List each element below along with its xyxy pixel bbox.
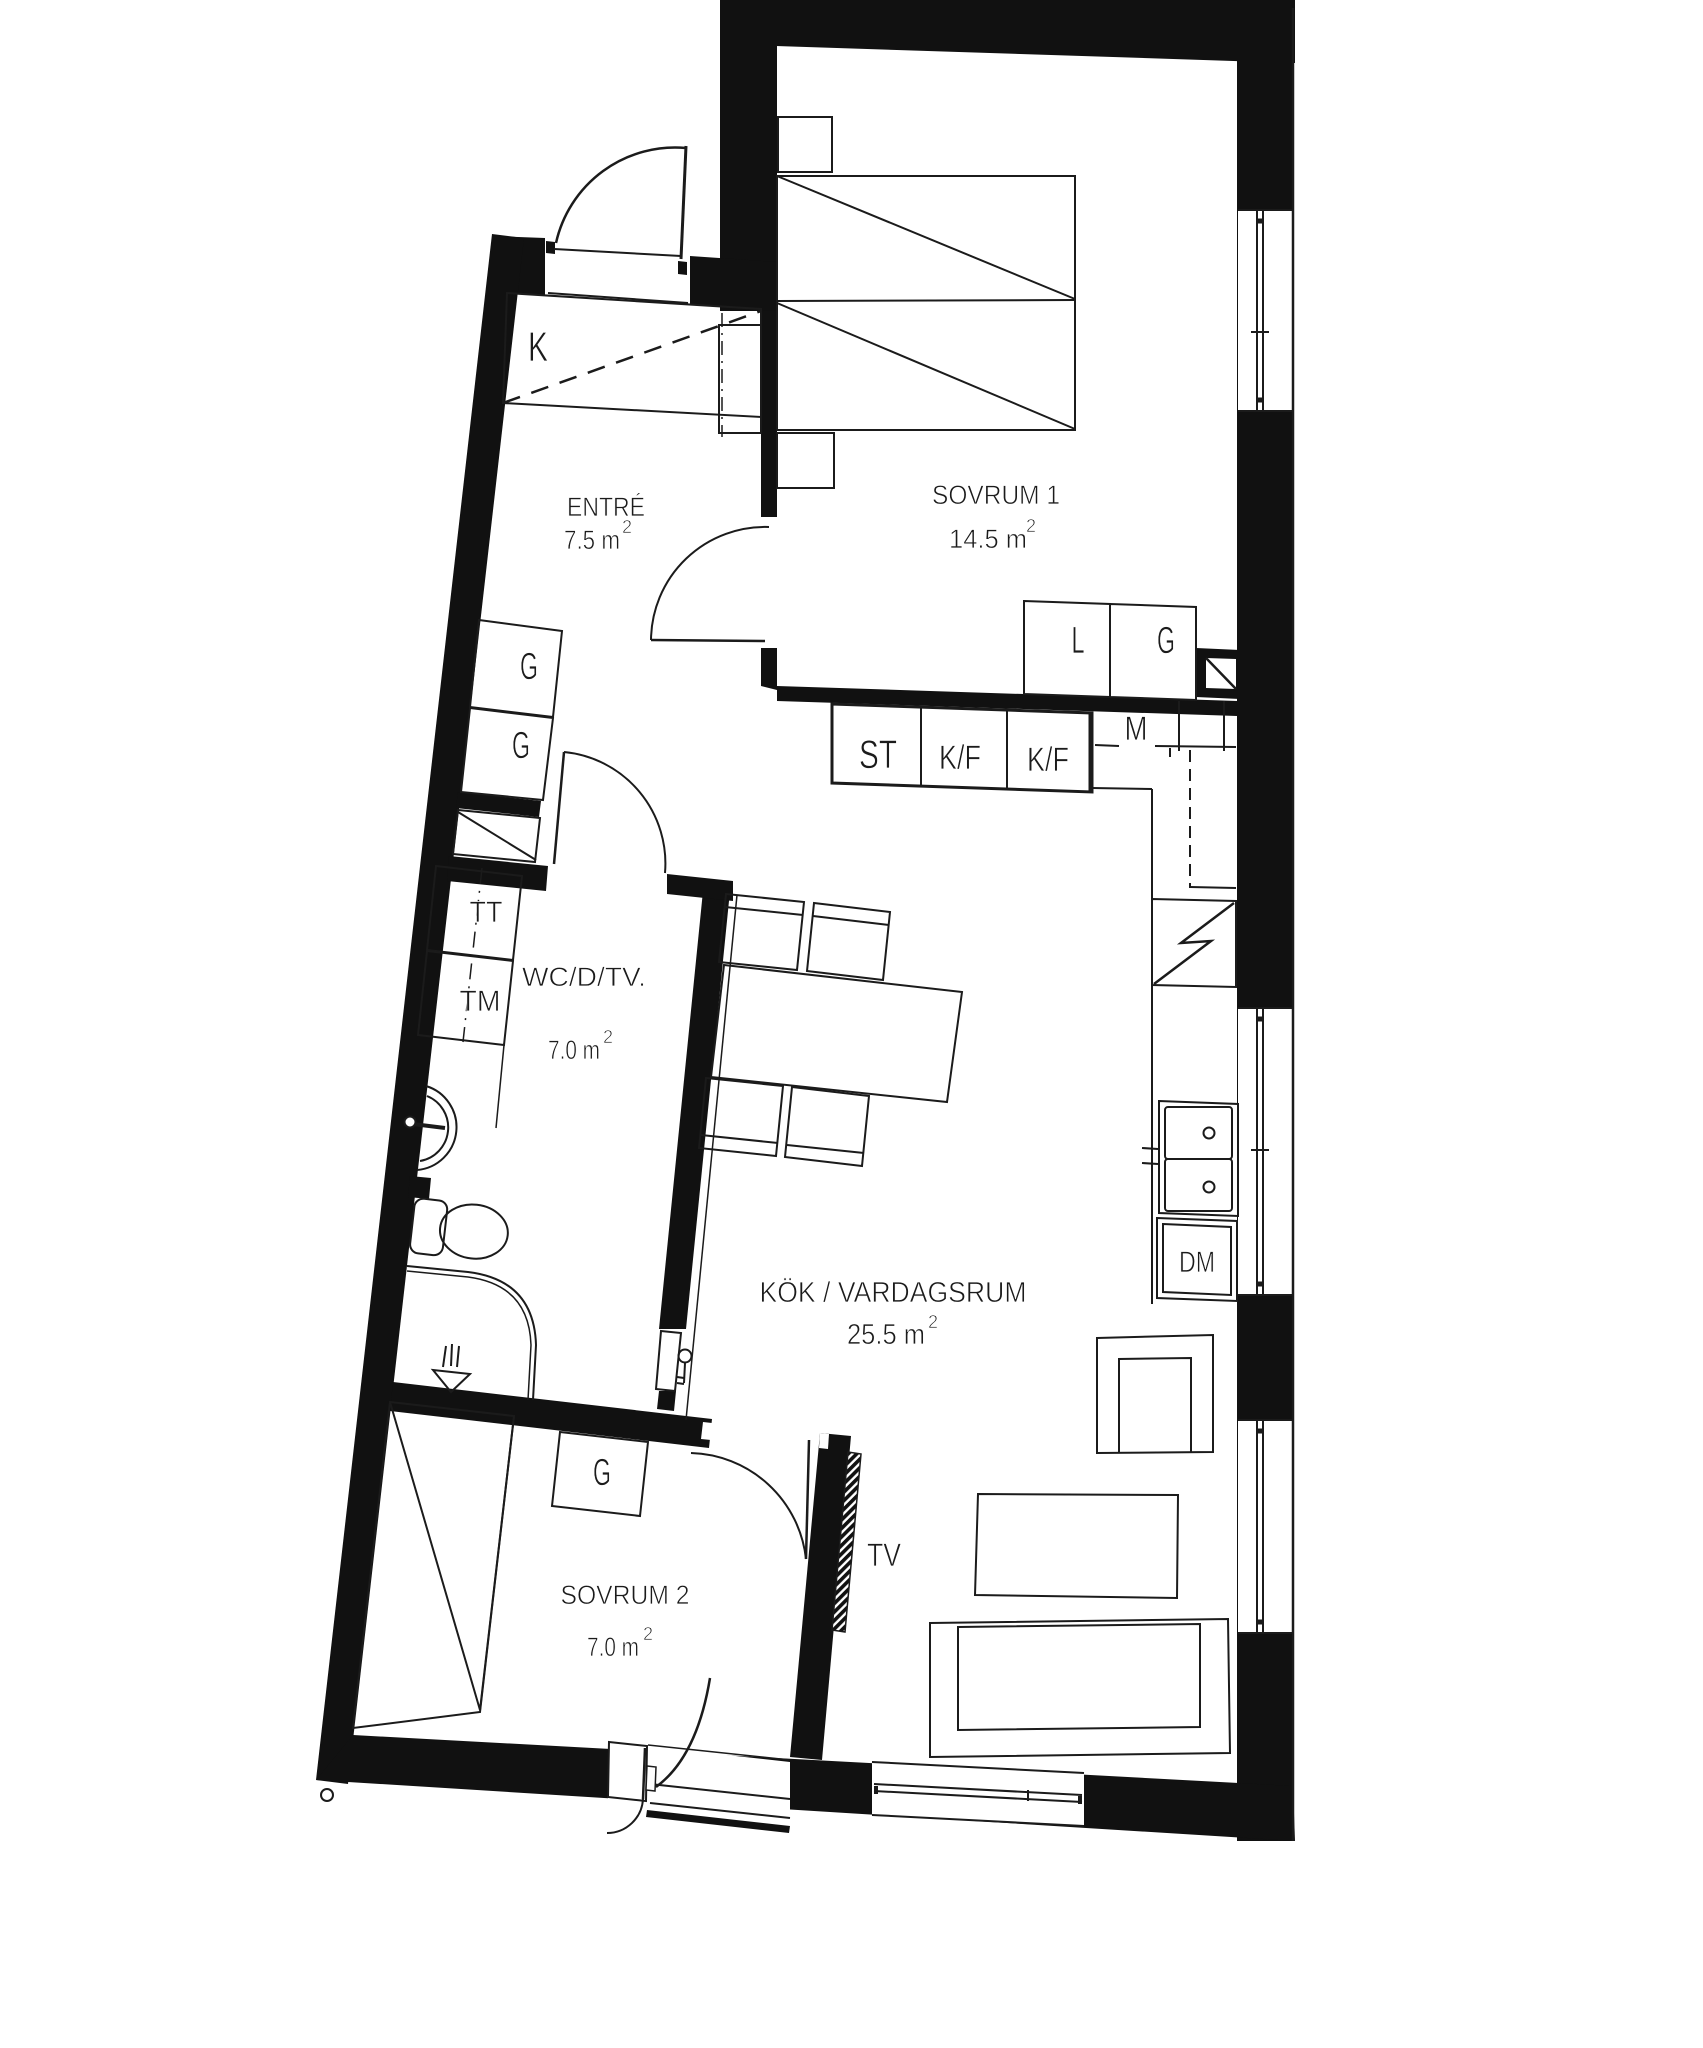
svg-text:WC/D/TV.: WC/D/TV.	[522, 962, 646, 992]
svg-text:G: G	[520, 646, 538, 688]
svg-text:G: G	[593, 1452, 611, 1494]
svg-text:KÖK / VARDAGSRUM: KÖK / VARDAGSRUM	[760, 1277, 1027, 1309]
svg-text:2: 2	[622, 517, 632, 537]
svg-text:K/F: K/F	[1027, 741, 1069, 779]
svg-text:TM: TM	[460, 985, 501, 1018]
svg-text:14.5 m: 14.5 m	[949, 524, 1027, 554]
svg-text:DM: DM	[1179, 1246, 1215, 1279]
svg-text:2: 2	[928, 1312, 938, 1332]
svg-text:7.5 m: 7.5 m	[564, 525, 620, 555]
svg-text:M: M	[1125, 710, 1148, 748]
svg-text:ENTRÉ: ENTRÉ	[567, 492, 645, 522]
svg-text:G: G	[512, 725, 530, 767]
svg-text:7.0 m: 7.0 m	[587, 1632, 639, 1662]
svg-text:2: 2	[603, 1027, 613, 1047]
svg-text:TV: TV	[867, 1537, 902, 1573]
svg-text:25.5 m: 25.5 m	[847, 1319, 925, 1351]
svg-text:TT: TT	[470, 896, 503, 929]
svg-text:ST: ST	[859, 733, 897, 777]
svg-text:7.0 m: 7.0 m	[548, 1035, 600, 1065]
svg-text:K: K	[528, 323, 548, 370]
svg-text:SOVRUM 1: SOVRUM 1	[932, 480, 1060, 510]
svg-text:SOVRUM 2: SOVRUM 2	[561, 1580, 690, 1610]
svg-text:L: L	[1072, 620, 1085, 662]
svg-text:K/F: K/F	[939, 739, 981, 777]
svg-text:2: 2	[643, 1624, 653, 1644]
svg-text:2: 2	[1026, 516, 1036, 536]
svg-text:G: G	[1157, 620, 1175, 662]
